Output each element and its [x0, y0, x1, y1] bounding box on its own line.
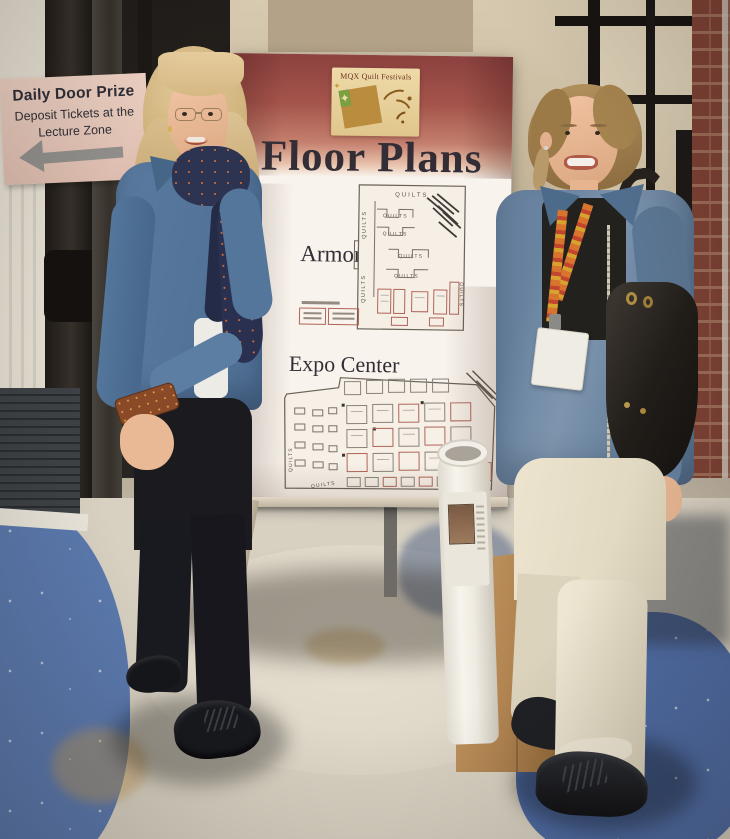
left-woman-bangs: [158, 52, 244, 96]
left-woman-hand-on-hip: [120, 414, 174, 470]
shoe-laces: [203, 706, 240, 733]
glasses-bridge: [195, 112, 202, 114]
left-woman-earring: [168, 126, 172, 132]
left-woman-eye: [208, 112, 213, 116]
left-woman-eye: [182, 112, 187, 116]
left-woman: [0, 0, 730, 839]
left-woman-teeth: [187, 137, 205, 142]
left-woman-leg: [190, 514, 251, 718]
photo-scene: Daily Door Prize Deposit Tickets at the …: [0, 0, 730, 839]
